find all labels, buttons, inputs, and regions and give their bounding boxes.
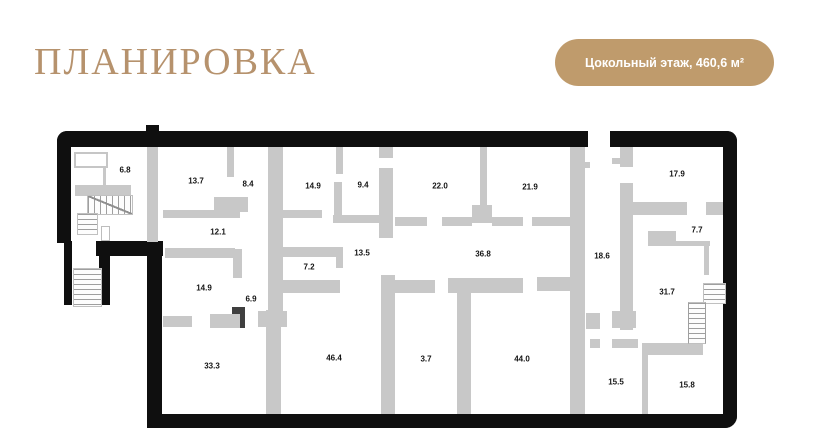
partition-wall (280, 280, 340, 293)
room-area-label: 6.9 (245, 295, 256, 304)
partition-wall (163, 316, 192, 327)
partition-wall (442, 217, 472, 226)
partition-wall (620, 183, 633, 330)
staircase (703, 283, 726, 304)
room-area-label: 33.3 (204, 362, 220, 371)
exterior-wall (146, 125, 159, 133)
exterior-stair-wall (64, 241, 72, 305)
room-area-label: 3.7 (420, 355, 431, 364)
exterior-wall (610, 131, 737, 147)
partition-wall (395, 217, 427, 226)
room-area-label: 17.9 (669, 170, 685, 179)
room-area-label: 21.9 (522, 183, 538, 192)
partition-wall (647, 343, 703, 355)
room-area-label: 12.1 (210, 228, 226, 237)
partition-wall (381, 275, 395, 414)
door-jamb (612, 158, 620, 164)
partition-wall (590, 339, 600, 348)
partition-wall (333, 215, 383, 223)
exterior-wall (57, 131, 588, 147)
partition-wall (336, 247, 343, 268)
exterior-wall (147, 414, 737, 428)
partition-wall (480, 147, 487, 205)
partition-wall (379, 168, 393, 238)
partition-wall (280, 210, 322, 218)
exterior-wall (147, 241, 162, 428)
staircase (77, 213, 98, 235)
partition-wall (537, 277, 572, 291)
partition-wall (382, 280, 435, 293)
staircase (73, 268, 102, 307)
room-area-label: 15.8 (679, 381, 695, 390)
partition-wall (642, 343, 648, 414)
room-area-label: 31.7 (659, 288, 675, 297)
partition-wall (334, 182, 342, 215)
room-area-label: 15.5 (608, 378, 624, 387)
partition-wall (379, 147, 393, 158)
partition-wall (266, 310, 281, 414)
partition-wall (633, 202, 687, 215)
partition-wall (280, 247, 338, 257)
partition-wall (620, 147, 633, 167)
door-jamb (585, 162, 590, 168)
partition-wall (457, 292, 471, 414)
partition-wall (532, 217, 572, 226)
exterior-wall (723, 131, 737, 428)
room-area-label: 13.5 (354, 249, 370, 258)
floor-plan: 6.813.78.414.99.422.021.917.912.113.536.… (0, 0, 820, 436)
partition-wall (233, 249, 242, 278)
room-area-label: 14.9 (305, 182, 321, 191)
partition-wall (336, 147, 343, 174)
partition-wall (706, 202, 723, 215)
room-area-label: 6.8 (119, 166, 130, 175)
room-area-label: 36.8 (475, 250, 491, 259)
partition-wall (147, 147, 158, 242)
partition-wall (586, 313, 600, 329)
exterior-wall (57, 131, 71, 243)
doorway-mark (74, 152, 108, 168)
room-area-label: 7.7 (691, 226, 702, 235)
partition-wall (612, 339, 638, 348)
staircase (87, 195, 133, 215)
radiator (101, 226, 110, 241)
room-area-label: 14.9 (196, 284, 212, 293)
partition-wall (648, 231, 676, 246)
room-area-label: 7.2 (303, 263, 314, 272)
room-area-label: 8.4 (242, 180, 253, 189)
room-area-label: 9.4 (357, 181, 368, 190)
partition-wall (704, 246, 709, 275)
partition-wall (492, 217, 523, 226)
partition-wall (165, 248, 235, 258)
room-area-label: 13.7 (188, 177, 204, 186)
partition-wall (570, 147, 585, 414)
partition-wall (210, 314, 240, 328)
partition-wall (227, 147, 234, 177)
partition-wall (268, 147, 283, 320)
partition-wall (612, 311, 636, 328)
room-area-label: 44.0 (514, 355, 530, 364)
room-area-label: 46.4 (326, 354, 342, 363)
partition-wall (163, 210, 240, 218)
staircase (688, 302, 706, 344)
room-area-label: 18.6 (594, 252, 610, 261)
partition-wall (472, 205, 492, 223)
room-area-label: 22.0 (432, 182, 448, 191)
partition-wall (448, 278, 523, 293)
